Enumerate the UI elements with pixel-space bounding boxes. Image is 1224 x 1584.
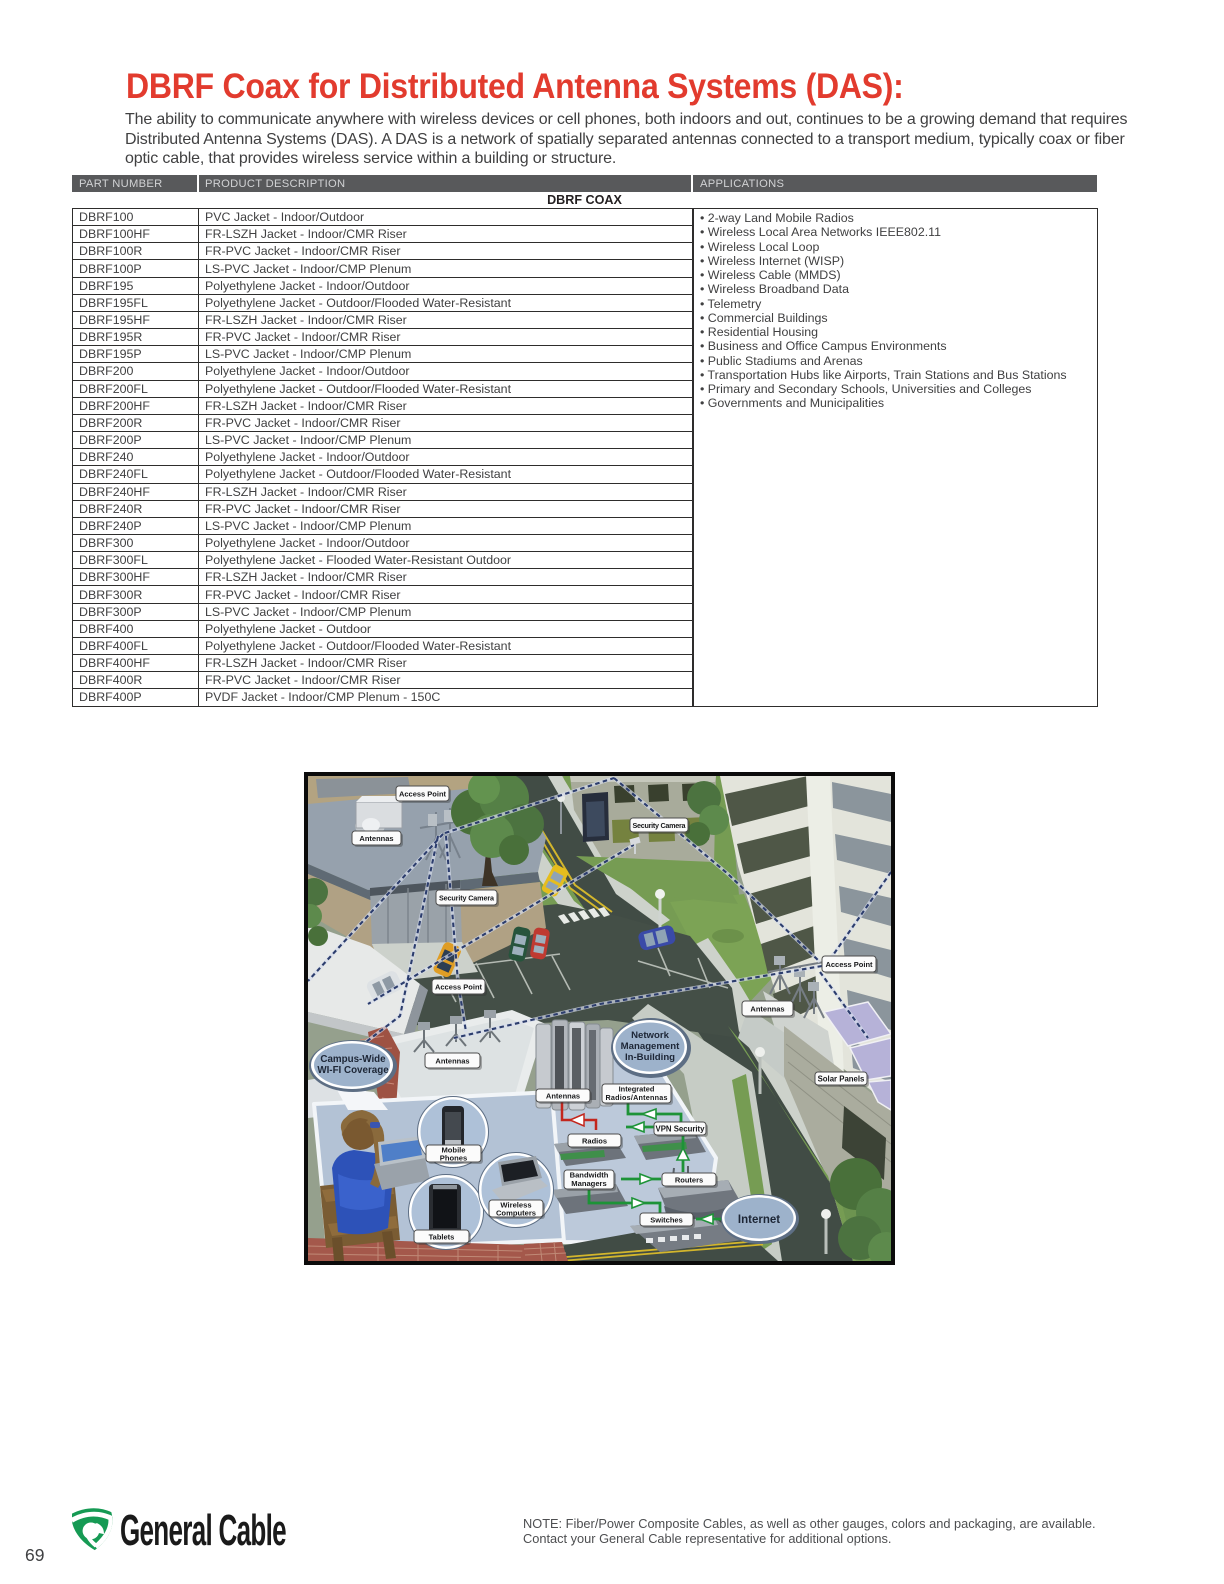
svg-text:Access Point: Access Point [399, 790, 447, 799]
svg-text:Radios: Radios [582, 1137, 607, 1146]
svg-text:Managers: Managers [571, 1179, 606, 1188]
svg-text:General Cable: General Cable [120, 1508, 286, 1554]
svg-text:Antennas: Antennas [359, 834, 393, 843]
svg-text:Antennas: Antennas [435, 1057, 469, 1066]
svg-text:Switches: Switches [650, 1216, 683, 1225]
svg-text:Security Camera: Security Camera [439, 894, 495, 903]
svg-text:VPN Security: VPN Security [656, 1125, 706, 1134]
svg-text:Radios/Antennas: Radios/Antennas [606, 1093, 668, 1102]
svg-text:Computers: Computers [496, 1209, 536, 1218]
svg-text:Phones: Phones [440, 1154, 467, 1163]
svg-text:WI-FI Coverage: WI-FI Coverage [317, 1065, 389, 1076]
svg-text:Access Point: Access Point [435, 983, 483, 992]
svg-text:Antennas: Antennas [546, 1092, 580, 1101]
svg-text:Antennas: Antennas [750, 1005, 784, 1014]
svg-text:Solar Panels: Solar Panels [818, 1075, 865, 1084]
svg-text:Routers: Routers [675, 1176, 703, 1185]
svg-text:Campus-Wide: Campus-Wide [320, 1054, 386, 1065]
svg-text:Tablets: Tablets [429, 1233, 455, 1242]
svg-text:Internet: Internet [738, 1214, 780, 1226]
svg-text:Management: Management [621, 1041, 680, 1052]
svg-text:Network: Network [631, 1030, 670, 1041]
svg-text:In-Building: In-Building [625, 1052, 675, 1063]
svg-text:Security Camera: Security Camera [633, 821, 687, 830]
svg-text:Access Point: Access Point [825, 960, 873, 969]
